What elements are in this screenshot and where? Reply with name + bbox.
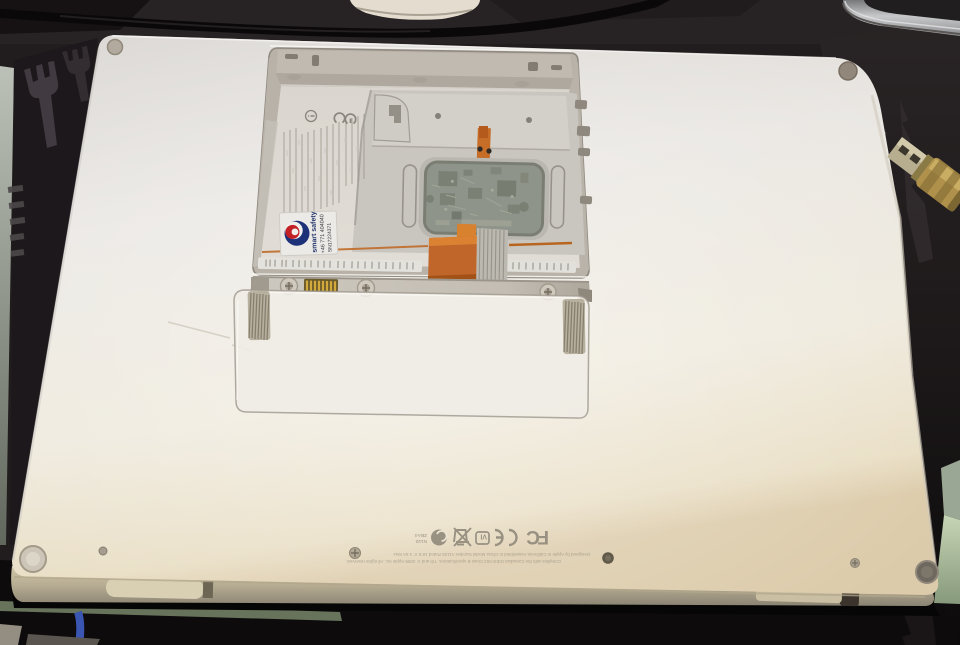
svg-text:ZBA4: ZBA4 xyxy=(415,532,427,538)
svg-text:FC: FC xyxy=(526,526,549,547)
svg-text:SN17224371: SN17224371 xyxy=(327,223,334,253)
svg-text:Complies with the Canadian ICE: Complies with the Canadian ICES-003 Clas… xyxy=(346,559,561,564)
svg-text:N122: N122 xyxy=(415,538,427,544)
svg-text:Designed by Apple in Californi: Designed by Apple in California Assemble… xyxy=(393,552,590,557)
svg-text:VI: VI xyxy=(480,533,487,540)
svg-text:smart safety: smart safety xyxy=(310,211,318,253)
